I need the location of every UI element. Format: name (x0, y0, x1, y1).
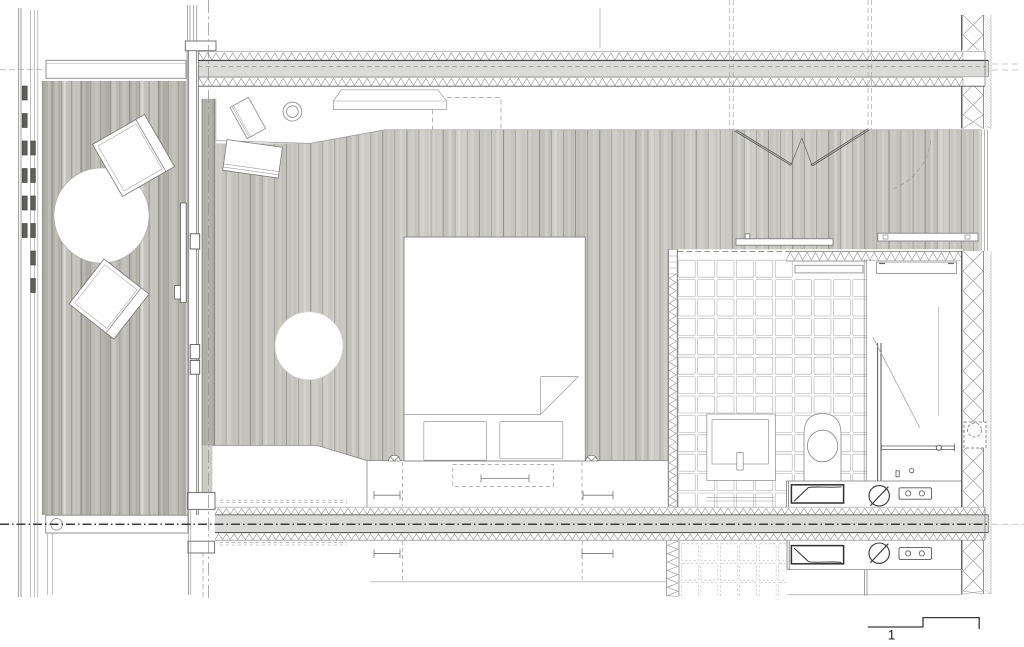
svg-text:1: 1 (888, 628, 896, 643)
